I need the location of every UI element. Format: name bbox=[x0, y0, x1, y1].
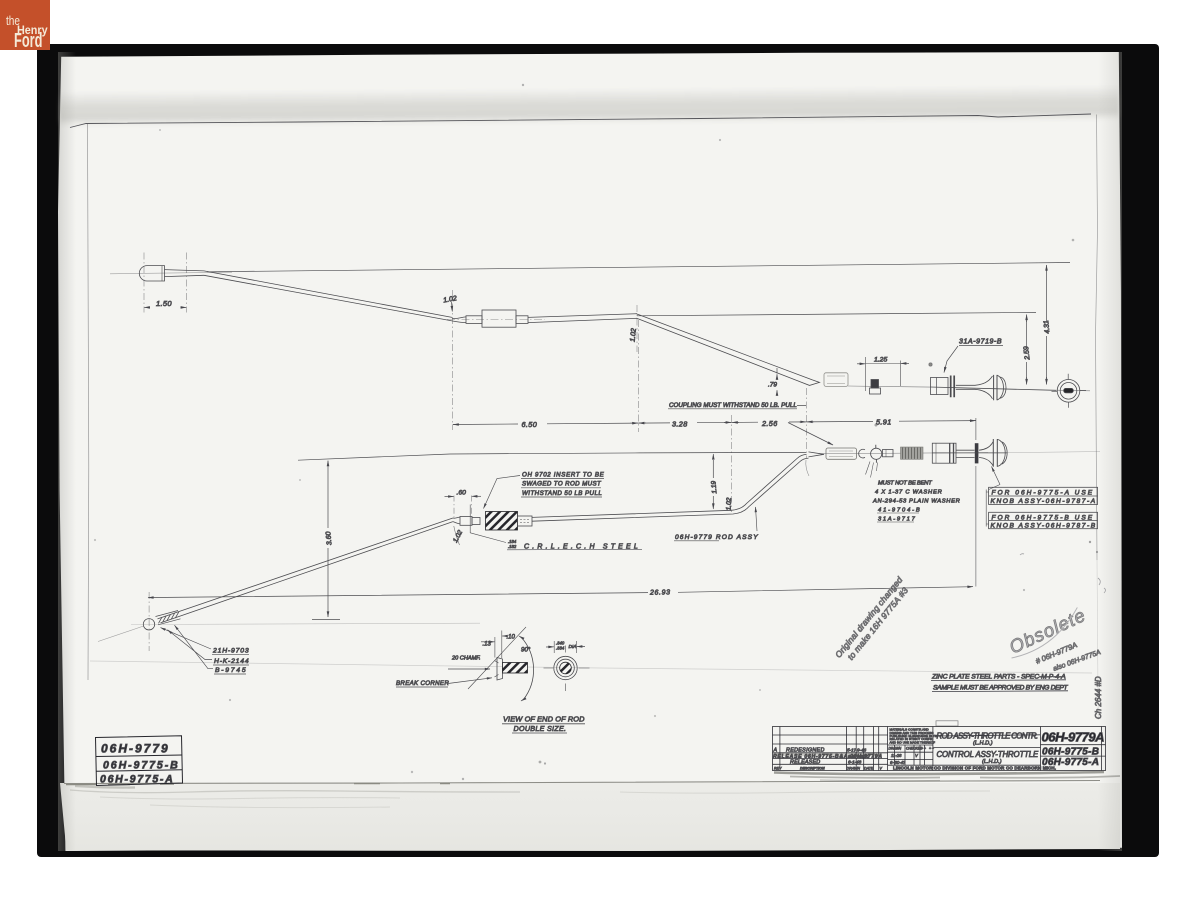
svg-text:06H-9779 ROD ASSY: 06H-9779 ROD ASSY bbox=[675, 534, 758, 541]
svg-text:26.93: 26.93 bbox=[649, 589, 671, 596]
svg-text:6-1-48: 6-1-48 bbox=[848, 759, 862, 764]
svg-text:REV: REV bbox=[774, 766, 782, 770]
svg-text:REDESIGNED: REDESIGNED bbox=[786, 748, 825, 754]
svg-text:SWAGED TO ROD MUST: SWAGED TO ROD MUST bbox=[522, 481, 602, 488]
svg-text:.79: .79 bbox=[768, 382, 777, 389]
svg-text:DESCRIPTION: DESCRIPTION bbox=[800, 766, 825, 770]
svg-text:Ch 2644 #D: Ch 2644 #D bbox=[1094, 676, 1103, 719]
svg-text:3.28: 3.28 bbox=[672, 419, 688, 428]
svg-text:9-46: 9-46 bbox=[857, 747, 867, 752]
svg-text:4 X 1-37 C WASHER: 4 X 1-37 C WASHER bbox=[875, 490, 943, 496]
svg-text:.13: .13 bbox=[483, 642, 492, 648]
svg-text:1.19: 1.19 bbox=[710, 480, 718, 494]
svg-text:21H-9703: 21H-9703 bbox=[212, 647, 249, 654]
svg-text:90°: 90° bbox=[521, 647, 531, 654]
svg-text:FOR 06H-9775-A USE: FOR 06H-9775-A USE bbox=[992, 490, 1093, 497]
svg-text:2.56: 2.56 bbox=[761, 419, 778, 428]
svg-text:(L.H.D.): (L.H.D.) bbox=[982, 759, 1002, 765]
svg-text:LINCOLN MOTOR CO DIVISION OF: LINCOLN MOTOR CO DIVISION OF FORD MOTOR … bbox=[893, 766, 1056, 771]
svg-text:06H-9775-B: 06H-9775-B bbox=[1042, 747, 1099, 758]
svg-text:6.50: 6.50 bbox=[522, 420, 538, 429]
svg-text:DATE: DATE bbox=[864, 766, 874, 770]
svg-text:5-1?: 5-1? bbox=[847, 747, 857, 752]
svg-text:AN-294-53 PLAIN WASHER: AN-294-53 PLAIN WASHER bbox=[872, 499, 961, 505]
svg-text:06H-9775-A: 06H-9775-A bbox=[100, 774, 173, 786]
svg-text:1.02: 1.02 bbox=[726, 497, 733, 510]
svg-text:(L.H.D.): (L.H.D.) bbox=[973, 740, 993, 746]
svg-text:5.91: 5.91 bbox=[876, 417, 892, 426]
svg-text:VIEW OF END OF ROD: VIEW OF END OF ROD bbox=[503, 715, 585, 724]
svg-text:MUST NOT BE BENT: MUST NOT BE BENT bbox=[878, 481, 932, 487]
svg-text:SAMPLE MUST BE APPROVED BY ENG: SAMPLE MUST BE APPROVED BY ENG DEPT bbox=[933, 684, 1069, 691]
svg-text:06H-9779: 06H-9779 bbox=[101, 742, 168, 756]
svg-text:DOUBLE SIZE.: DOUBLE SIZE. bbox=[514, 724, 567, 733]
svg-text:V: V bbox=[915, 753, 919, 758]
svg-text:AND NO USE MADE THEREOF: AND NO USE MADE THEREOF bbox=[890, 740, 936, 744]
svg-text:DRAWN: DRAWN bbox=[889, 747, 902, 751]
svg-text:06H-9775-A: 06H-9775-A bbox=[1042, 757, 1099, 768]
svg-text:CONTROL ASSY-THROTTLE: CONTROL ASSY-THROTTLE bbox=[937, 750, 1039, 759]
svg-text:KNOB ASSY-06H-9787-B: KNOB ASSY-06H-9787-B bbox=[991, 522, 1096, 529]
svg-text:DIA: DIA bbox=[569, 644, 577, 650]
svg-text:3.60: 3.60 bbox=[325, 531, 333, 545]
svg-text:B-9745: B-9745 bbox=[215, 667, 246, 674]
svg-text:ZINC PLATE STEEL PARTS - SPEC-: ZINC PLATE STEEL PARTS - SPEC-M-P-4-A bbox=[931, 673, 1066, 680]
svg-text:06H-9779A: 06H-9779A bbox=[1042, 730, 1105, 745]
svg-text:41-9704-B: 41-9704-B bbox=[878, 508, 920, 514]
svg-text:A: A bbox=[773, 748, 778, 754]
svg-text:+ +: + + bbox=[929, 746, 934, 750]
svg-text:COUPLING MUST WITHSTAND 50 LB.: COUPLING MUST WITHSTAND 50 LB. PULL bbox=[669, 402, 797, 409]
svg-text:4.31: 4.31 bbox=[1043, 320, 1051, 334]
svg-text:2.59: 2.59 bbox=[1023, 346, 1032, 361]
svg-text:Original drawing changed: Original drawing changed bbox=[833, 575, 904, 660]
svg-text:1.02: 1.02 bbox=[630, 328, 638, 342]
svg-text:31A-9717: 31A-9717 bbox=[878, 517, 916, 523]
svg-text:OH 9702 INSERT TO BE: OH 9702 INSERT TO BE bbox=[522, 472, 605, 479]
svg-text:KNOB ASSY-06H-9787-A: KNOB ASSY-06H-9787-A bbox=[991, 498, 1096, 505]
svg-text:20 CHAMF.: 20 CHAMF. bbox=[451, 656, 481, 662]
svg-text:31A-9719-B: 31A-9719-B bbox=[959, 339, 1002, 346]
svg-text:Obsolete: Obsolete bbox=[1006, 604, 1089, 658]
svg-text:6-'30-4?: 6-'30-4? bbox=[890, 760, 906, 765]
svg-text:1.25: 1.25 bbox=[874, 357, 887, 364]
svg-text:.60: .60 bbox=[457, 490, 467, 497]
svg-text:1.02: 1.02 bbox=[443, 295, 458, 304]
svg-text:11-28: 11-28 bbox=[891, 753, 902, 758]
svg-text:WITHSTAND 50 LB PULL: WITHSTAND 50 LB PULL bbox=[522, 490, 602, 497]
svg-text:H-K-2144: H-K-2144 bbox=[214, 658, 249, 665]
svg-text:V: V bbox=[880, 766, 883, 770]
svg-text:.182: .182 bbox=[508, 544, 517, 549]
svg-text:1.50: 1.50 bbox=[156, 299, 172, 308]
svg-text:DRAWN: DRAWN bbox=[847, 766, 861, 770]
svg-text:BREAK CORNER: BREAK CORNER bbox=[396, 680, 449, 687]
svg-text:.334: .334 bbox=[556, 646, 565, 651]
svg-text:+ +: + + bbox=[921, 746, 926, 750]
svg-text:06H-9775-B: 06H-9775-B bbox=[103, 759, 178, 771]
